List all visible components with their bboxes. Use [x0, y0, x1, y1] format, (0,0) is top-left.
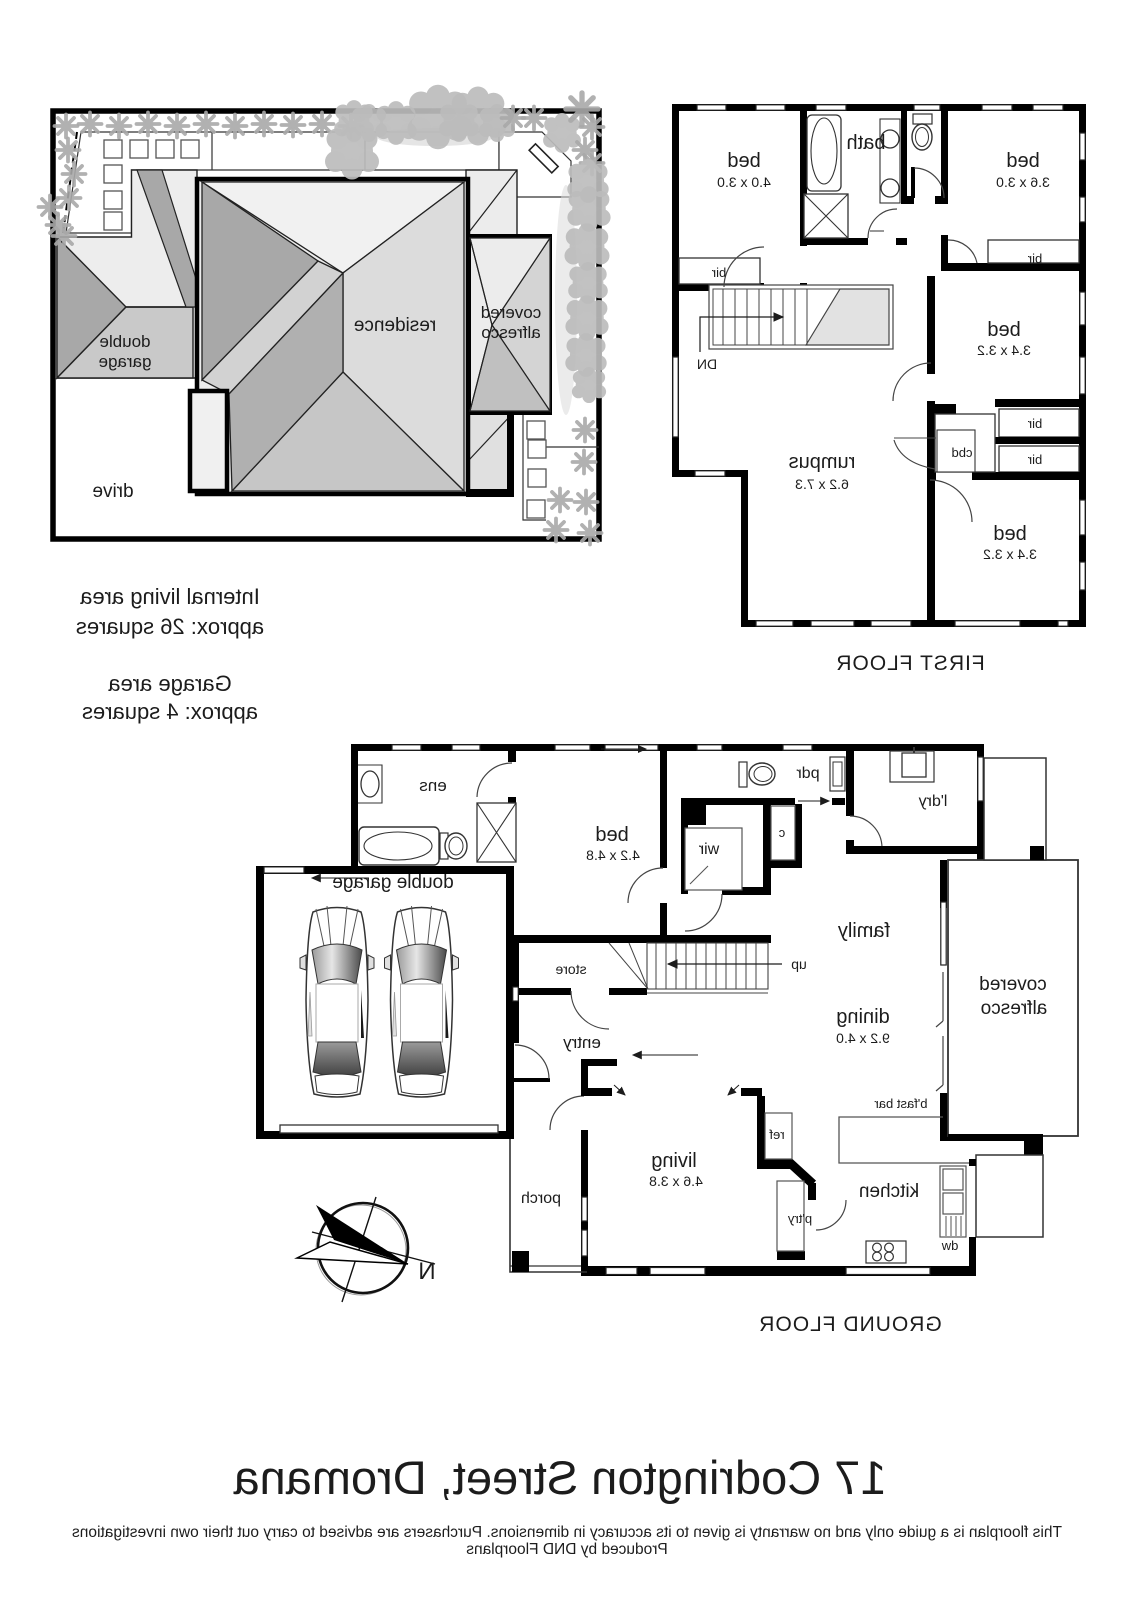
- svg-text:approx: 26 squares: approx: 26 squares: [76, 614, 264, 639]
- svg-text:alfresco: alfresco: [481, 323, 541, 342]
- svg-text:N: N: [418, 1258, 435, 1285]
- svg-text:l'dry: l'dry: [919, 793, 948, 810]
- svg-text:p'try: p'try: [787, 1211, 812, 1226]
- svg-text:Garage area: Garage area: [107, 671, 231, 696]
- svg-text:ref: ref: [769, 1127, 785, 1142]
- svg-text:dining: dining: [836, 1006, 889, 1028]
- svg-text:GROUND FLOOR: GROUND FLOOR: [758, 1313, 942, 1336]
- svg-text:cbd: cbd: [952, 445, 973, 460]
- svg-text:up: up: [791, 956, 807, 972]
- svg-text:bir: bir: [1027, 251, 1042, 266]
- svg-text:bed: bed: [1006, 150, 1039, 172]
- svg-text:b'fast bar: b'fast bar: [874, 1096, 928, 1111]
- svg-text:DN: DN: [697, 356, 717, 372]
- svg-text:bed: bed: [595, 824, 628, 846]
- svg-text:dw: dw: [941, 1238, 958, 1253]
- svg-text:store: store: [555, 961, 586, 977]
- svg-text:alfresco: alfresco: [981, 998, 1048, 1019]
- svg-text:ens: ens: [419, 776, 446, 795]
- svg-text:3.4 x 3.2: 3.4 x 3.2: [983, 546, 1037, 562]
- svg-text:double: double: [99, 332, 150, 351]
- svg-text:bed: bed: [727, 150, 760, 172]
- svg-text:rumpus: rumpus: [789, 451, 856, 473]
- svg-text:9.2 x 4.0: 9.2 x 4.0: [836, 1030, 890, 1046]
- svg-text:pdr: pdr: [796, 765, 820, 782]
- svg-text:FIRST FLOOR: FIRST FLOOR: [835, 652, 984, 675]
- svg-text:6.2 x 7.3: 6.2 x 7.3: [795, 476, 849, 492]
- svg-text:Produced by DND Floorplans: Produced by DND Floorplans: [466, 1541, 668, 1558]
- svg-text:17 Codrington Street, Dromana: 17 Codrington Street, Dromana: [233, 1451, 887, 1504]
- svg-text:residence: residence: [354, 315, 436, 336]
- svg-text:This floorplan is a guide only: This floorplan is a guide only and no wa…: [72, 1524, 1062, 1541]
- svg-text:entry: entry: [563, 1033, 601, 1052]
- svg-text:bed: bed: [987, 319, 1020, 341]
- svg-text:covered: covered: [979, 974, 1047, 995]
- svg-text:bir: bir: [711, 265, 726, 280]
- svg-text:3.6 x 3.0: 3.6 x 3.0: [996, 174, 1050, 190]
- svg-text:4.6 x 3.8: 4.6 x 3.8: [649, 1173, 703, 1189]
- svg-text:wir: wir: [698, 841, 720, 858]
- svg-text:bath: bath: [847, 132, 886, 154]
- svg-text:4.0 x 3.0: 4.0 x 3.0: [717, 174, 771, 190]
- svg-text:drive: drive: [92, 481, 133, 502]
- svg-text:family: family: [838, 920, 890, 942]
- svg-text:c: c: [778, 825, 785, 840]
- svg-text:bed: bed: [993, 523, 1026, 545]
- svg-text:kitchen: kitchen: [859, 1181, 919, 1202]
- svg-text:porch: porch: [521, 1190, 561, 1207]
- svg-text:double garage: double garage: [332, 872, 454, 893]
- svg-text:living: living: [651, 1150, 697, 1172]
- svg-text:approx: 4 squares: approx: 4 squares: [82, 699, 258, 724]
- svg-text:4.2 x 4.8: 4.2 x 4.8: [586, 847, 640, 863]
- svg-text:garage: garage: [99, 352, 152, 371]
- svg-text:bir: bir: [1027, 416, 1042, 431]
- svg-text:covered: covered: [481, 303, 541, 322]
- svg-text:bir: bir: [1027, 452, 1042, 467]
- svg-text:Internal living area: Internal living area: [79, 584, 260, 609]
- svg-text:3.4 x 3.2: 3.4 x 3.2: [977, 342, 1031, 358]
